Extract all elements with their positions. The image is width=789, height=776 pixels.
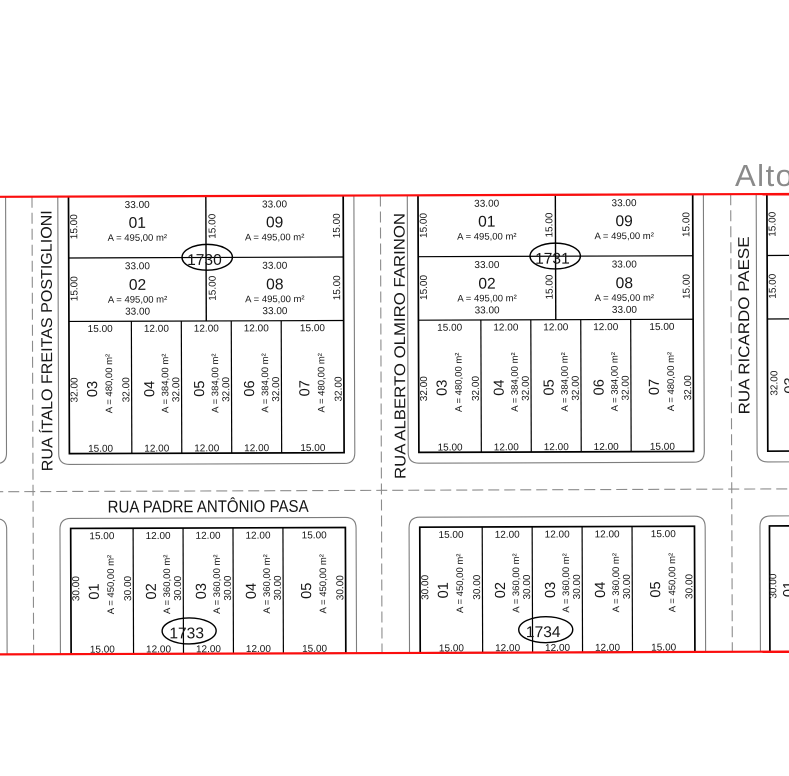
svg-text:A = 495,00 m²: A = 495,00 m² [245,294,304,305]
svg-text:03: 03 [194,583,210,599]
svg-text:A = 360,00 m²: A = 360,00 m² [162,555,173,614]
svg-text:33.00: 33.00 [262,199,288,210]
svg-text:A = 384,00 m²: A = 384,00 m² [160,354,171,413]
svg-text:A = 360,00 m²: A = 360,00 m² [561,553,572,612]
svg-text:15.00: 15.00 [69,276,80,302]
svg-text:05: 05 [542,379,558,395]
svg-text:15.00: 15.00 [89,531,115,542]
svg-text:15.00: 15.00 [651,529,677,540]
svg-text:32.00: 32.00 [471,376,482,402]
svg-text:1733: 1733 [169,625,204,642]
svg-text:A = 360,00 m²: A = 360,00 m² [511,553,522,612]
svg-text:12.00: 12.00 [244,323,270,334]
svg-text:30.00: 30.00 [572,574,583,600]
svg-text:A = 450,00 m²: A = 450,00 m² [318,554,329,613]
svg-text:A = 495,00 m²: A = 495,00 m² [595,293,654,304]
svg-text:RUA ALBERTO OLMIRO FARINON: RUA ALBERTO OLMIRO FARINON [392,213,410,479]
svg-text:33.00: 33.00 [262,306,288,317]
svg-text:1731: 1731 [535,251,570,268]
svg-text:15.00: 15.00 [300,443,326,454]
svg-text:15.00: 15.00 [300,323,326,334]
svg-text:30.00: 30.00 [273,575,284,601]
svg-text:01: 01 [781,581,789,597]
svg-text:A = 384,00 m²: A = 384,00 m² [610,352,621,411]
svg-text:32.00: 32.00 [521,375,532,401]
svg-text:07: 07 [297,380,313,396]
svg-text:30.00: 30.00 [223,575,234,601]
svg-text:32.00: 32.00 [69,377,80,403]
svg-text:1734: 1734 [526,624,561,641]
svg-text:12.00: 12.00 [146,531,172,542]
svg-text:30.00: 30.00 [173,575,184,601]
svg-text:12.00: 12.00 [494,442,520,453]
svg-text:33.00: 33.00 [474,260,500,271]
svg-text:15.00: 15.00 [207,213,218,239]
svg-text:A = 360,00 m²: A = 360,00 m² [212,554,223,613]
svg-text:08: 08 [616,275,633,292]
svg-text:A = 495,00 m²: A = 495,00 m² [108,295,167,306]
svg-text:01: 01 [436,582,452,598]
svg-text:30.00: 30.00 [472,574,483,600]
svg-text:1730: 1730 [187,252,222,269]
svg-text:02: 02 [478,276,495,293]
svg-text:30.00: 30.00 [622,574,633,600]
svg-text:A = 384,00 m²: A = 384,00 m² [560,352,571,411]
svg-text:09: 09 [266,214,283,231]
svg-text:12.00: 12.00 [545,529,571,540]
svg-text:08: 08 [266,276,283,293]
svg-text:RUA ÍTALO FREITAS POSTIGLIONI: RUA ÍTALO FREITAS POSTIGLIONI [39,210,57,471]
svg-text:12.00: 12.00 [194,443,220,454]
svg-text:12.00: 12.00 [543,322,569,333]
svg-text:12.00: 12.00 [495,530,521,541]
svg-text:A = 384,00 m²: A = 384,00 m² [510,352,521,411]
svg-text:A = 480,00 m²: A = 480,00 m² [104,354,115,413]
svg-text:15.00: 15.00 [302,530,328,541]
svg-text:09: 09 [615,213,632,230]
svg-text:RUA PADRE ANTÔNIO PASA: RUA PADRE ANTÔNIO PASA [108,497,310,517]
svg-text:33.00: 33.00 [612,198,638,209]
svg-text:12.00: 12.00 [196,531,222,542]
svg-text:A = 450,00 m²: A = 450,00 m² [455,554,466,613]
svg-text:15.00: 15.00 [649,322,675,333]
svg-text:32.00: 32.00 [683,375,694,401]
svg-text:15.00: 15.00 [438,530,464,541]
svg-text:15.00: 15.00 [69,214,80,240]
svg-text:30.00: 30.00 [123,575,134,601]
svg-text:33.00: 33.00 [612,259,638,270]
svg-text:32.00: 32.00 [621,375,632,401]
svg-text:33.00: 33.00 [125,261,151,272]
svg-text:Alto: Alto [735,158,789,193]
svg-text:01: 01 [478,214,495,231]
svg-text:02: 02 [129,277,146,294]
svg-text:30.00: 30.00 [420,574,431,600]
svg-text:A = 495,00 m²: A = 495,00 m² [457,231,516,242]
svg-text:12.00: 12.00 [144,324,170,335]
svg-text:12.00: 12.00 [595,529,621,540]
svg-text:07: 07 [647,379,663,395]
svg-text:32.00: 32.00 [171,377,182,403]
svg-text:15.00: 15.00 [681,212,692,238]
svg-text:15.00: 15.00 [437,323,463,334]
svg-text:15.00: 15.00 [438,442,464,453]
svg-text:15.00: 15.00 [419,213,430,239]
svg-text:A = 495,00 m²: A = 495,00 m² [457,293,516,304]
svg-text:12.00: 12.00 [594,442,620,453]
svg-text:32.00: 32.00 [769,370,780,396]
svg-text:33.00: 33.00 [125,200,151,211]
svg-text:32.00: 32.00 [334,376,345,402]
svg-text:12.00: 12.00 [194,324,220,335]
svg-text:A = 384,00 m²: A = 384,00 m² [260,353,271,412]
svg-text:04: 04 [244,583,260,599]
svg-text:15.00: 15.00 [208,275,219,301]
svg-text:33.00: 33.00 [612,305,638,316]
svg-text:A = 450,00 m²: A = 450,00 m² [667,553,678,612]
svg-text:30.00: 30.00 [768,573,779,599]
svg-text:03: 03 [782,377,789,393]
svg-text:30.00: 30.00 [71,576,82,602]
svg-text:06: 06 [592,379,608,395]
svg-text:32.00: 32.00 [271,376,282,402]
svg-text:12.00: 12.00 [244,443,270,454]
svg-text:01: 01 [129,215,146,232]
svg-text:A = 480,00 m²: A = 480,00 m² [316,353,327,412]
svg-text:A = 480,00 m²: A = 480,00 m² [454,353,465,412]
svg-text:12.00: 12.00 [144,444,170,455]
svg-text:15.00: 15.00 [682,274,693,300]
svg-text:A = 495,00 m²: A = 495,00 m² [594,231,653,242]
svg-text:32.00: 32.00 [571,375,582,401]
svg-text:32.00: 32.00 [121,377,132,403]
svg-text:12.00: 12.00 [493,322,519,333]
svg-text:15.00: 15.00 [544,212,555,238]
svg-text:02: 02 [144,583,160,599]
svg-text:04: 04 [593,582,609,598]
svg-text:30.00: 30.00 [335,575,346,601]
svg-text:15.00: 15.00 [767,211,778,237]
svg-text:12.00: 12.00 [245,531,271,542]
svg-text:03: 03 [435,380,451,396]
svg-text:A = 495,00 m²: A = 495,00 m² [245,232,304,243]
svg-text:06: 06 [242,380,258,396]
svg-text:04: 04 [492,379,508,395]
svg-text:02: 02 [493,582,509,598]
svg-text:33.00: 33.00 [125,307,151,318]
svg-text:15.00: 15.00 [88,444,114,455]
svg-text:A = 384,00 m²: A = 384,00 m² [210,353,221,412]
svg-text:A = 495,00 m²: A = 495,00 m² [108,233,167,244]
svg-text:12.00: 12.00 [593,322,619,333]
svg-text:15.00: 15.00 [332,213,343,239]
svg-text:33.00: 33.00 [474,199,500,210]
svg-text:30.00: 30.00 [522,574,533,600]
svg-text:01: 01 [87,583,103,599]
svg-text:04: 04 [142,381,158,397]
svg-text:15.00: 15.00 [650,442,676,453]
svg-text:30.00: 30.00 [684,573,695,599]
svg-text:03: 03 [85,381,101,397]
svg-text:A = 480,00 m²: A = 480,00 m² [666,352,677,411]
svg-text:33.00: 33.00 [262,261,288,272]
svg-text:A = 450,00 m²: A = 450,00 m² [106,555,117,614]
svg-text:05: 05 [648,581,664,597]
svg-text:33.00: 33.00 [475,305,501,316]
svg-text:15.00: 15.00 [545,274,556,300]
svg-text:12.00: 12.00 [544,442,570,453]
svg-text:15.00: 15.00 [332,275,343,301]
svg-text:A = 360,00 m²: A = 360,00 m² [262,554,273,613]
svg-text:03: 03 [543,582,559,598]
svg-text:A = 360,00 m²: A = 360,00 m² [611,553,622,612]
svg-text:RUA RICARDO PAESE: RUA RICARDO PAESE [736,236,754,414]
svg-text:15.00: 15.00 [768,273,779,299]
svg-text:05: 05 [299,583,315,599]
svg-text:32.00: 32.00 [419,376,430,402]
svg-text:15.00: 15.00 [88,324,114,335]
svg-text:32.00: 32.00 [221,376,232,402]
svg-text:15.00: 15.00 [419,275,430,301]
svg-text:05: 05 [192,381,208,397]
